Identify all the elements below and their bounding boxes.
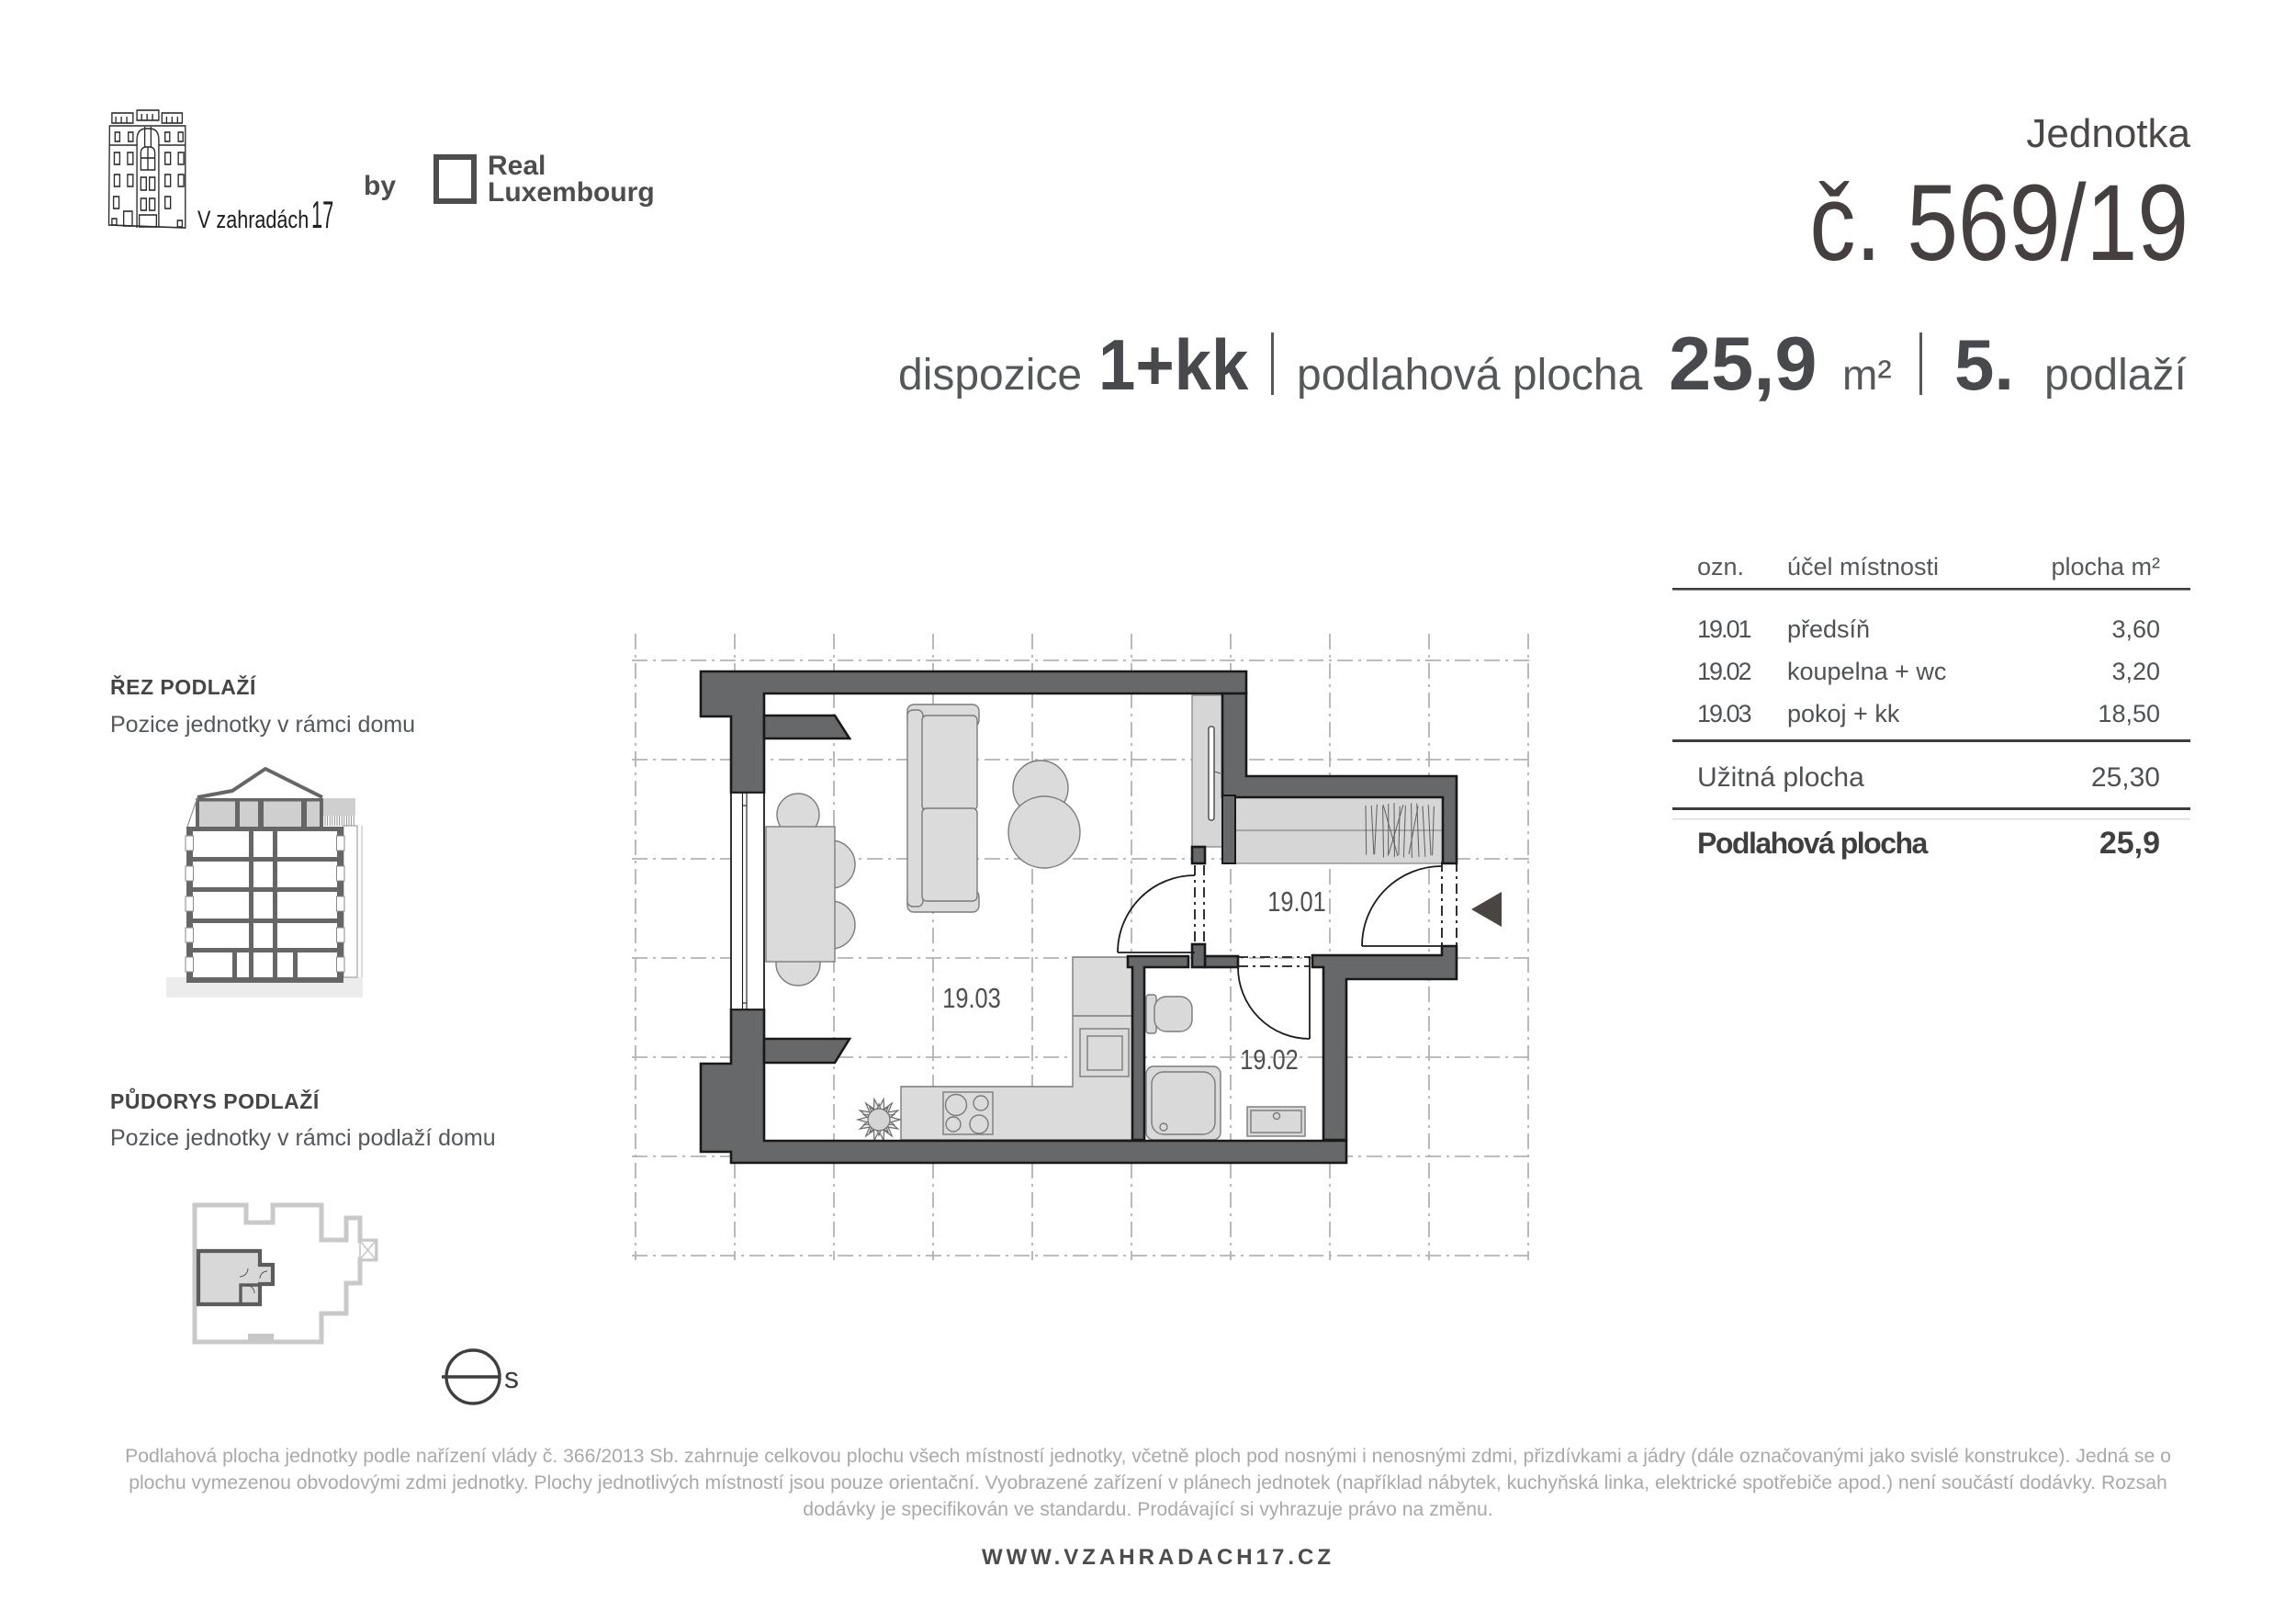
svg-text:19.01: 19.01 xyxy=(1697,615,1751,643)
svg-text:dispozice: dispozice xyxy=(898,351,1082,400)
svg-text:3,60: 3,60 xyxy=(2111,615,2160,643)
svg-text:č. 569/19: č. 569/19 xyxy=(1809,163,2189,283)
svg-text:ozn.: ozn. xyxy=(1697,553,1744,580)
svg-text:5.: 5. xyxy=(1954,324,2014,405)
svg-text:plocha m²: plocha m² xyxy=(2051,553,2160,580)
svg-text:PŮDORYS PODLAŽÍ: PŮDORYS PODLAŽÍ xyxy=(110,1087,320,1113)
svg-text:pokoj + kk: pokoj + kk xyxy=(1787,700,1900,727)
svg-text:m²: m² xyxy=(1842,351,1892,399)
svg-text:Podlahová plocha jednotky podl: Podlahová plocha jednotky podle nařízení… xyxy=(125,1446,2171,1467)
svg-text:WWW.VZAHRADACH17.CZ: WWW.VZAHRADACH17.CZ xyxy=(982,1545,1334,1570)
svg-text:25,9: 25,9 xyxy=(2099,826,2160,861)
svg-text:Podlahová plocha: Podlahová plocha xyxy=(1697,827,1929,860)
svg-text:25,9: 25,9 xyxy=(1669,321,1818,406)
svg-text:podlahová plocha: podlahová plocha xyxy=(1297,351,1643,400)
svg-text:plochu vymezenou obvodovými zd: plochu vymezenou obvodovými zdmi jednotk… xyxy=(129,1472,2167,1493)
svg-text:by: by xyxy=(364,171,396,201)
svg-text:Pozice jednotky v rámci domu: Pozice jednotky v rámci domu xyxy=(110,712,415,738)
svg-text:17: 17 xyxy=(311,195,333,237)
svg-text:ŘEZ PODLAŽÍ: ŘEZ PODLAŽÍ xyxy=(110,674,256,699)
svg-text:s: s xyxy=(504,1361,519,1394)
svg-text:19.03: 19.03 xyxy=(942,983,1001,1015)
svg-text:V zahradách: V zahradách xyxy=(197,207,309,234)
svg-text:18,50: 18,50 xyxy=(2098,700,2160,727)
svg-text:25,30: 25,30 xyxy=(2091,762,2160,793)
svg-text:1+kk: 1+kk xyxy=(1098,325,1248,405)
svg-text:předsíň: předsíň xyxy=(1787,615,1870,643)
svg-text:Pozice jednotky v rámci podlaž: Pozice jednotky v rámci podlaží domu xyxy=(110,1125,496,1151)
svg-text:účel místnosti: účel místnosti xyxy=(1787,553,1939,580)
svg-text:Jednotka: Jednotka xyxy=(2026,111,2190,156)
svg-text:Užitná plocha: Užitná plocha xyxy=(1697,762,1864,793)
svg-text:19.02: 19.02 xyxy=(1697,658,1751,685)
svg-text:3,20: 3,20 xyxy=(2111,658,2160,685)
svg-text:dodávky je specifikován ve sta: dodávky je specifikován ve standardu. Pr… xyxy=(803,1499,1492,1520)
svg-text:19.01: 19.01 xyxy=(1267,886,1326,919)
svg-text:koupelna + wc: koupelna + wc xyxy=(1787,658,1946,685)
svg-text:19.03: 19.03 xyxy=(1697,700,1751,727)
svg-text:Luxembourg: Luxembourg xyxy=(488,177,655,208)
svg-text:19.02: 19.02 xyxy=(1240,1044,1299,1076)
svg-text:podlaží: podlaží xyxy=(2044,351,2187,400)
